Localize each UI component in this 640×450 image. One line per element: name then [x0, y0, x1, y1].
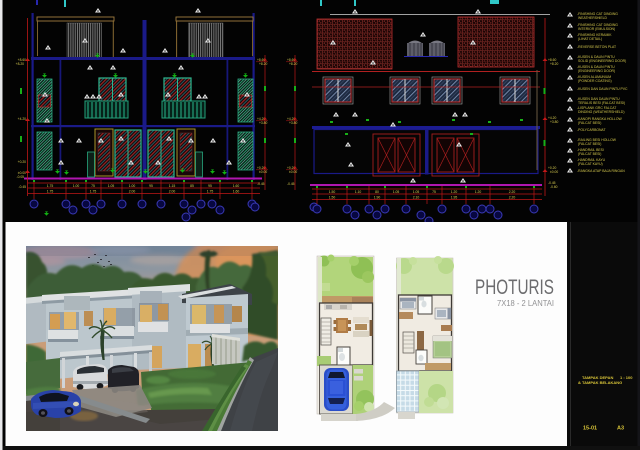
svg-text:+8.20: +8.20 [289, 62, 298, 66]
svg-text:+8.20: +8.20 [16, 62, 25, 66]
svg-text:2.00: 2.00 [129, 190, 136, 194]
svg-text:+8.20: +8.20 [550, 62, 559, 66]
svg-text:+3.80: +3.80 [289, 121, 298, 125]
svg-text:(FALCAT KAYU): (FALCAT KAYU) [578, 162, 603, 166]
svg-text:-POLYCARBONAT: -POLYCARBONAT [577, 128, 606, 132]
svg-text:1.00: 1.00 [73, 184, 80, 188]
svg-text:±0.00: ±0.00 [550, 170, 558, 174]
svg-text:1.75: 1.75 [207, 190, 214, 194]
svg-text:1.60: 1.60 [233, 184, 240, 188]
svg-text:±0.00: ±0.00 [259, 170, 267, 174]
svg-text:15-01: 15-01 [583, 426, 597, 432]
svg-text:1.75: 1.75 [47, 184, 54, 188]
svg-text:95: 95 [208, 184, 212, 188]
svg-text:WEATHERSHIELD: WEATHERSHIELD [578, 16, 608, 20]
svg-text:(LIHAT DETAIL): (LIHAT DETAIL) [578, 37, 602, 41]
svg-text:2.00: 2.00 [169, 190, 176, 194]
svg-text:& TAMPAK BELAKANG: & TAMPAK BELAKANG [578, 380, 622, 385]
svg-text:(FALCAT BESI): (FALCAT BESI) [578, 142, 601, 146]
svg-text:+8.20: +8.20 [259, 62, 268, 66]
svg-text:-0.45: -0.45 [257, 182, 265, 186]
svg-text:7X18 - 2 LANTAI: 7X18 - 2 LANTAI [497, 299, 554, 308]
svg-text:A3: A3 [617, 426, 624, 432]
svg-text:PHOTURIS: PHOTURIS [475, 275, 554, 299]
svg-text:1.15: 1.15 [169, 184, 176, 188]
svg-text:+3.80: +3.80 [550, 120, 559, 124]
svg-text:+3.80: +3.80 [259, 121, 268, 125]
svg-text:-RANGKA ATAP BAJA RINGAN: -RANGKA ATAP BAJA RINGAN [577, 169, 625, 173]
svg-text:TERALIS BESI (FALCAT BESI): TERALIS BESI (FALCAT BESI) [578, 101, 625, 105]
svg-text:-0.05: -0.05 [16, 175, 24, 179]
svg-text:1.20: 1.20 [475, 190, 482, 194]
svg-text:1.05: 1.05 [413, 190, 420, 194]
svg-text:SOLID (ENGINEERING DOOR): SOLID (ENGINEERING DOOR) [578, 59, 626, 63]
svg-text:1.60: 1.60 [233, 190, 240, 194]
svg-text:1.90: 1.90 [374, 196, 381, 200]
svg-text:85: 85 [190, 184, 194, 188]
svg-text:2.20: 2.20 [509, 196, 516, 200]
svg-text:1.95: 1.95 [451, 196, 458, 200]
svg-text:1.50: 1.50 [329, 196, 336, 200]
svg-text:INTERIOR (EMULSION): INTERIOR (EMULSION) [578, 27, 615, 31]
svg-text:+0.20: +0.20 [18, 160, 27, 164]
svg-text:(ENGINEERING DOOR): (ENGINEERING DOOR) [578, 69, 615, 73]
svg-text:-REVERSE BETON PLAT: -REVERSE BETON PLAT [577, 45, 616, 49]
svg-text:1.50: 1.50 [329, 190, 336, 194]
svg-text:1.00: 1.00 [129, 184, 136, 188]
svg-text:+4.20: +4.20 [18, 117, 27, 121]
svg-text:1.75: 1.75 [90, 190, 97, 194]
svg-text:DINDING (WEATHERSHIELD): DINDING (WEATHERSHIELD) [578, 110, 624, 114]
svg-text:(FALCAT BESI): (FALCAT BESI) [578, 121, 601, 125]
svg-text:-0.60: -0.60 [550, 185, 558, 189]
svg-text:1 : 100: 1 : 100 [620, 375, 633, 380]
svg-text:±0.00: ±0.00 [289, 170, 297, 174]
svg-text:75: 75 [432, 190, 436, 194]
svg-text:80: 80 [375, 190, 379, 194]
svg-text:1.20: 1.20 [451, 190, 458, 194]
svg-text:2.10: 2.10 [413, 196, 420, 200]
svg-text:75: 75 [91, 184, 95, 188]
svg-text:-0.45: -0.45 [287, 182, 295, 186]
svg-text:(POWDER COATING): (POWDER COATING) [578, 79, 612, 83]
svg-text:1.05: 1.05 [393, 190, 400, 194]
svg-text:1.75: 1.75 [47, 190, 54, 194]
svg-text:(FALCAT BESI): (FALCAT BESI) [578, 152, 601, 156]
svg-text:1.10: 1.10 [355, 190, 362, 194]
svg-text:-KUSEN DAN DAUN PINTU PVC: -KUSEN DAN DAUN PINTU PVC [577, 87, 628, 91]
svg-text:2.20: 2.20 [509, 190, 516, 194]
svg-text:1.05: 1.05 [108, 184, 115, 188]
svg-text:95: 95 [149, 184, 153, 188]
svg-text:-0.45: -0.45 [18, 185, 26, 189]
